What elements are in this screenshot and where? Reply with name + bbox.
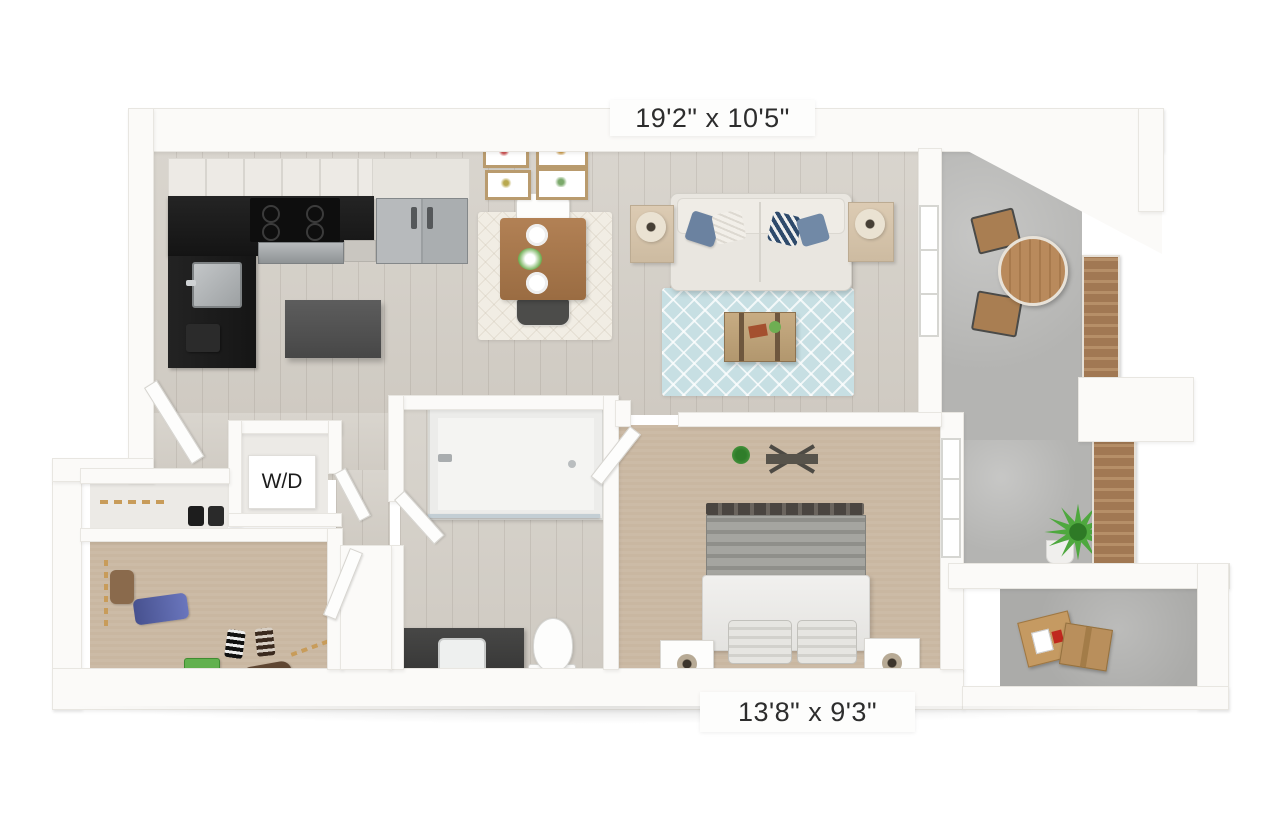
- shower-tub: [428, 408, 604, 520]
- wd-closet-wall-left: [228, 420, 242, 527]
- bedroom-dimensions-label: 13'8" x 9'3": [738, 697, 877, 728]
- throw-pillow-white: [711, 209, 747, 245]
- building-shadow: [60, 706, 1160, 724]
- wd-closet-wall-top: [228, 420, 342, 434]
- washer-dryer-label: W/D: [262, 470, 303, 494]
- tub-drain-icon: [568, 460, 576, 468]
- bedroom-dimensions-plate: 13'8" x 9'3": [700, 692, 915, 732]
- wd-closet-wall-bottom: [228, 513, 342, 527]
- dishwasher-panel: [344, 240, 376, 262]
- bed-pillow: [728, 620, 792, 664]
- dresser: [722, 432, 858, 486]
- dresser-plant-icon: [732, 446, 750, 464]
- fridge-handle-icon: [411, 207, 417, 229]
- coffee-maker: [186, 324, 220, 352]
- trunk-strap: [739, 313, 744, 361]
- floor-plan-render: W/D: [0, 0, 1280, 833]
- bed-pillow: [797, 620, 857, 664]
- dining-chair: [516, 298, 570, 326]
- kitchen-sink: [192, 262, 242, 308]
- bedroom-wall-top: [678, 412, 942, 427]
- burner-icon: [262, 205, 280, 223]
- faucet-icon: [186, 280, 196, 286]
- balcony-railing: [1092, 440, 1136, 567]
- burner-icon: [262, 223, 280, 241]
- kitchen-upper-cabinets: [168, 158, 376, 200]
- window-mullion: [921, 249, 937, 251]
- exterior-wall-left: [128, 108, 154, 482]
- fridge-handle-icon: [427, 207, 433, 229]
- bed-blanket: [706, 515, 866, 579]
- oven-front: [258, 242, 344, 264]
- cardboard-box: [1059, 623, 1113, 672]
- shoes-pair: [224, 629, 246, 659]
- shoes-pair: [208, 506, 224, 526]
- window-mullion: [921, 293, 937, 295]
- trunk-decor-book: [748, 324, 768, 339]
- living-room-dimensions-label: 19'2" x 10'5": [635, 103, 790, 134]
- table-lamp-icon: [855, 209, 885, 239]
- stove-cooktop: [250, 198, 340, 242]
- sofa-seat-split: [759, 202, 761, 282]
- closet-wall-divider: [80, 528, 341, 542]
- hanging-bag: [110, 570, 134, 604]
- box-tape-icon: [1080, 627, 1092, 667]
- burner-icon: [306, 223, 324, 241]
- table-lamp-icon: [636, 212, 666, 242]
- trunk-coffee-table: [724, 312, 796, 362]
- shower-head-icon: [438, 454, 452, 462]
- dining-table: [500, 218, 586, 300]
- bistro-table: [998, 236, 1068, 306]
- wd-closet-wall-right: [328, 420, 342, 474]
- coat-rail-hanger-icon: [100, 500, 170, 504]
- closet-hangers-icon: [104, 556, 108, 626]
- bed-headboard: [706, 503, 864, 515]
- bedroom-window: [941, 438, 961, 558]
- box-label-icon: [1031, 629, 1054, 655]
- art-flowers-icon: [554, 177, 568, 187]
- art-flowers-icon: [500, 178, 512, 188]
- bathroom-wall-top: [388, 395, 619, 410]
- walkin-closet-carpet: [90, 540, 327, 668]
- living-room-window: [919, 205, 939, 337]
- bedroom-wall-column: [615, 400, 631, 427]
- shower-glass-door: [428, 514, 600, 518]
- kitchen-island: [285, 300, 381, 358]
- kitchen-fridge-cabinet: [372, 158, 470, 200]
- living-room-dimensions-plate: 19'2" x 10'5": [610, 100, 815, 136]
- refrigerator: [376, 198, 468, 264]
- balcony-divider-wall: [1078, 377, 1194, 442]
- wall-art-frame: [536, 168, 588, 200]
- burner-icon: [306, 205, 324, 223]
- trunk-decor-plant-icon: [769, 321, 781, 333]
- toilet-bowl: [533, 618, 573, 672]
- bathroom-wall-right: [603, 395, 619, 670]
- exterior-wall-right-top: [1138, 108, 1164, 212]
- wall-art-frame: [485, 170, 531, 200]
- plate-icon: [526, 272, 548, 294]
- shoes-pair: [255, 627, 276, 657]
- window-mullion: [943, 518, 959, 520]
- window-mullion: [943, 478, 959, 480]
- balcony-railing: [1082, 255, 1120, 381]
- flower-centerpiece-icon: [518, 248, 542, 270]
- washer-dryer-unit: W/D: [248, 455, 316, 509]
- coat-closet-wall-top: [80, 468, 230, 484]
- storage-wall-top: [948, 563, 1230, 589]
- plate-icon: [526, 224, 548, 246]
- shoes-pair: [188, 506, 204, 526]
- bathroom-wall-left-upper: [388, 395, 404, 502]
